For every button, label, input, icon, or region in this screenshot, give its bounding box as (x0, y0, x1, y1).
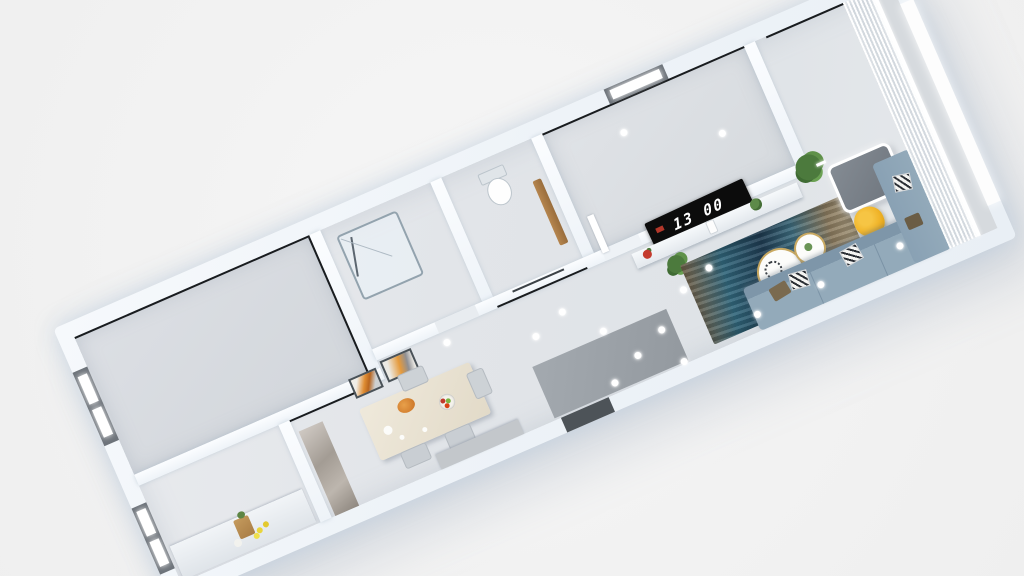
render-viewport: 13 00 (0, 0, 1024, 576)
table-plant (803, 242, 814, 253)
chevron-pillow (892, 173, 913, 193)
tv-red-badge (655, 225, 664, 233)
apartment-floorplan: 13 00 (53, 0, 1016, 576)
glass-brace (341, 239, 393, 257)
